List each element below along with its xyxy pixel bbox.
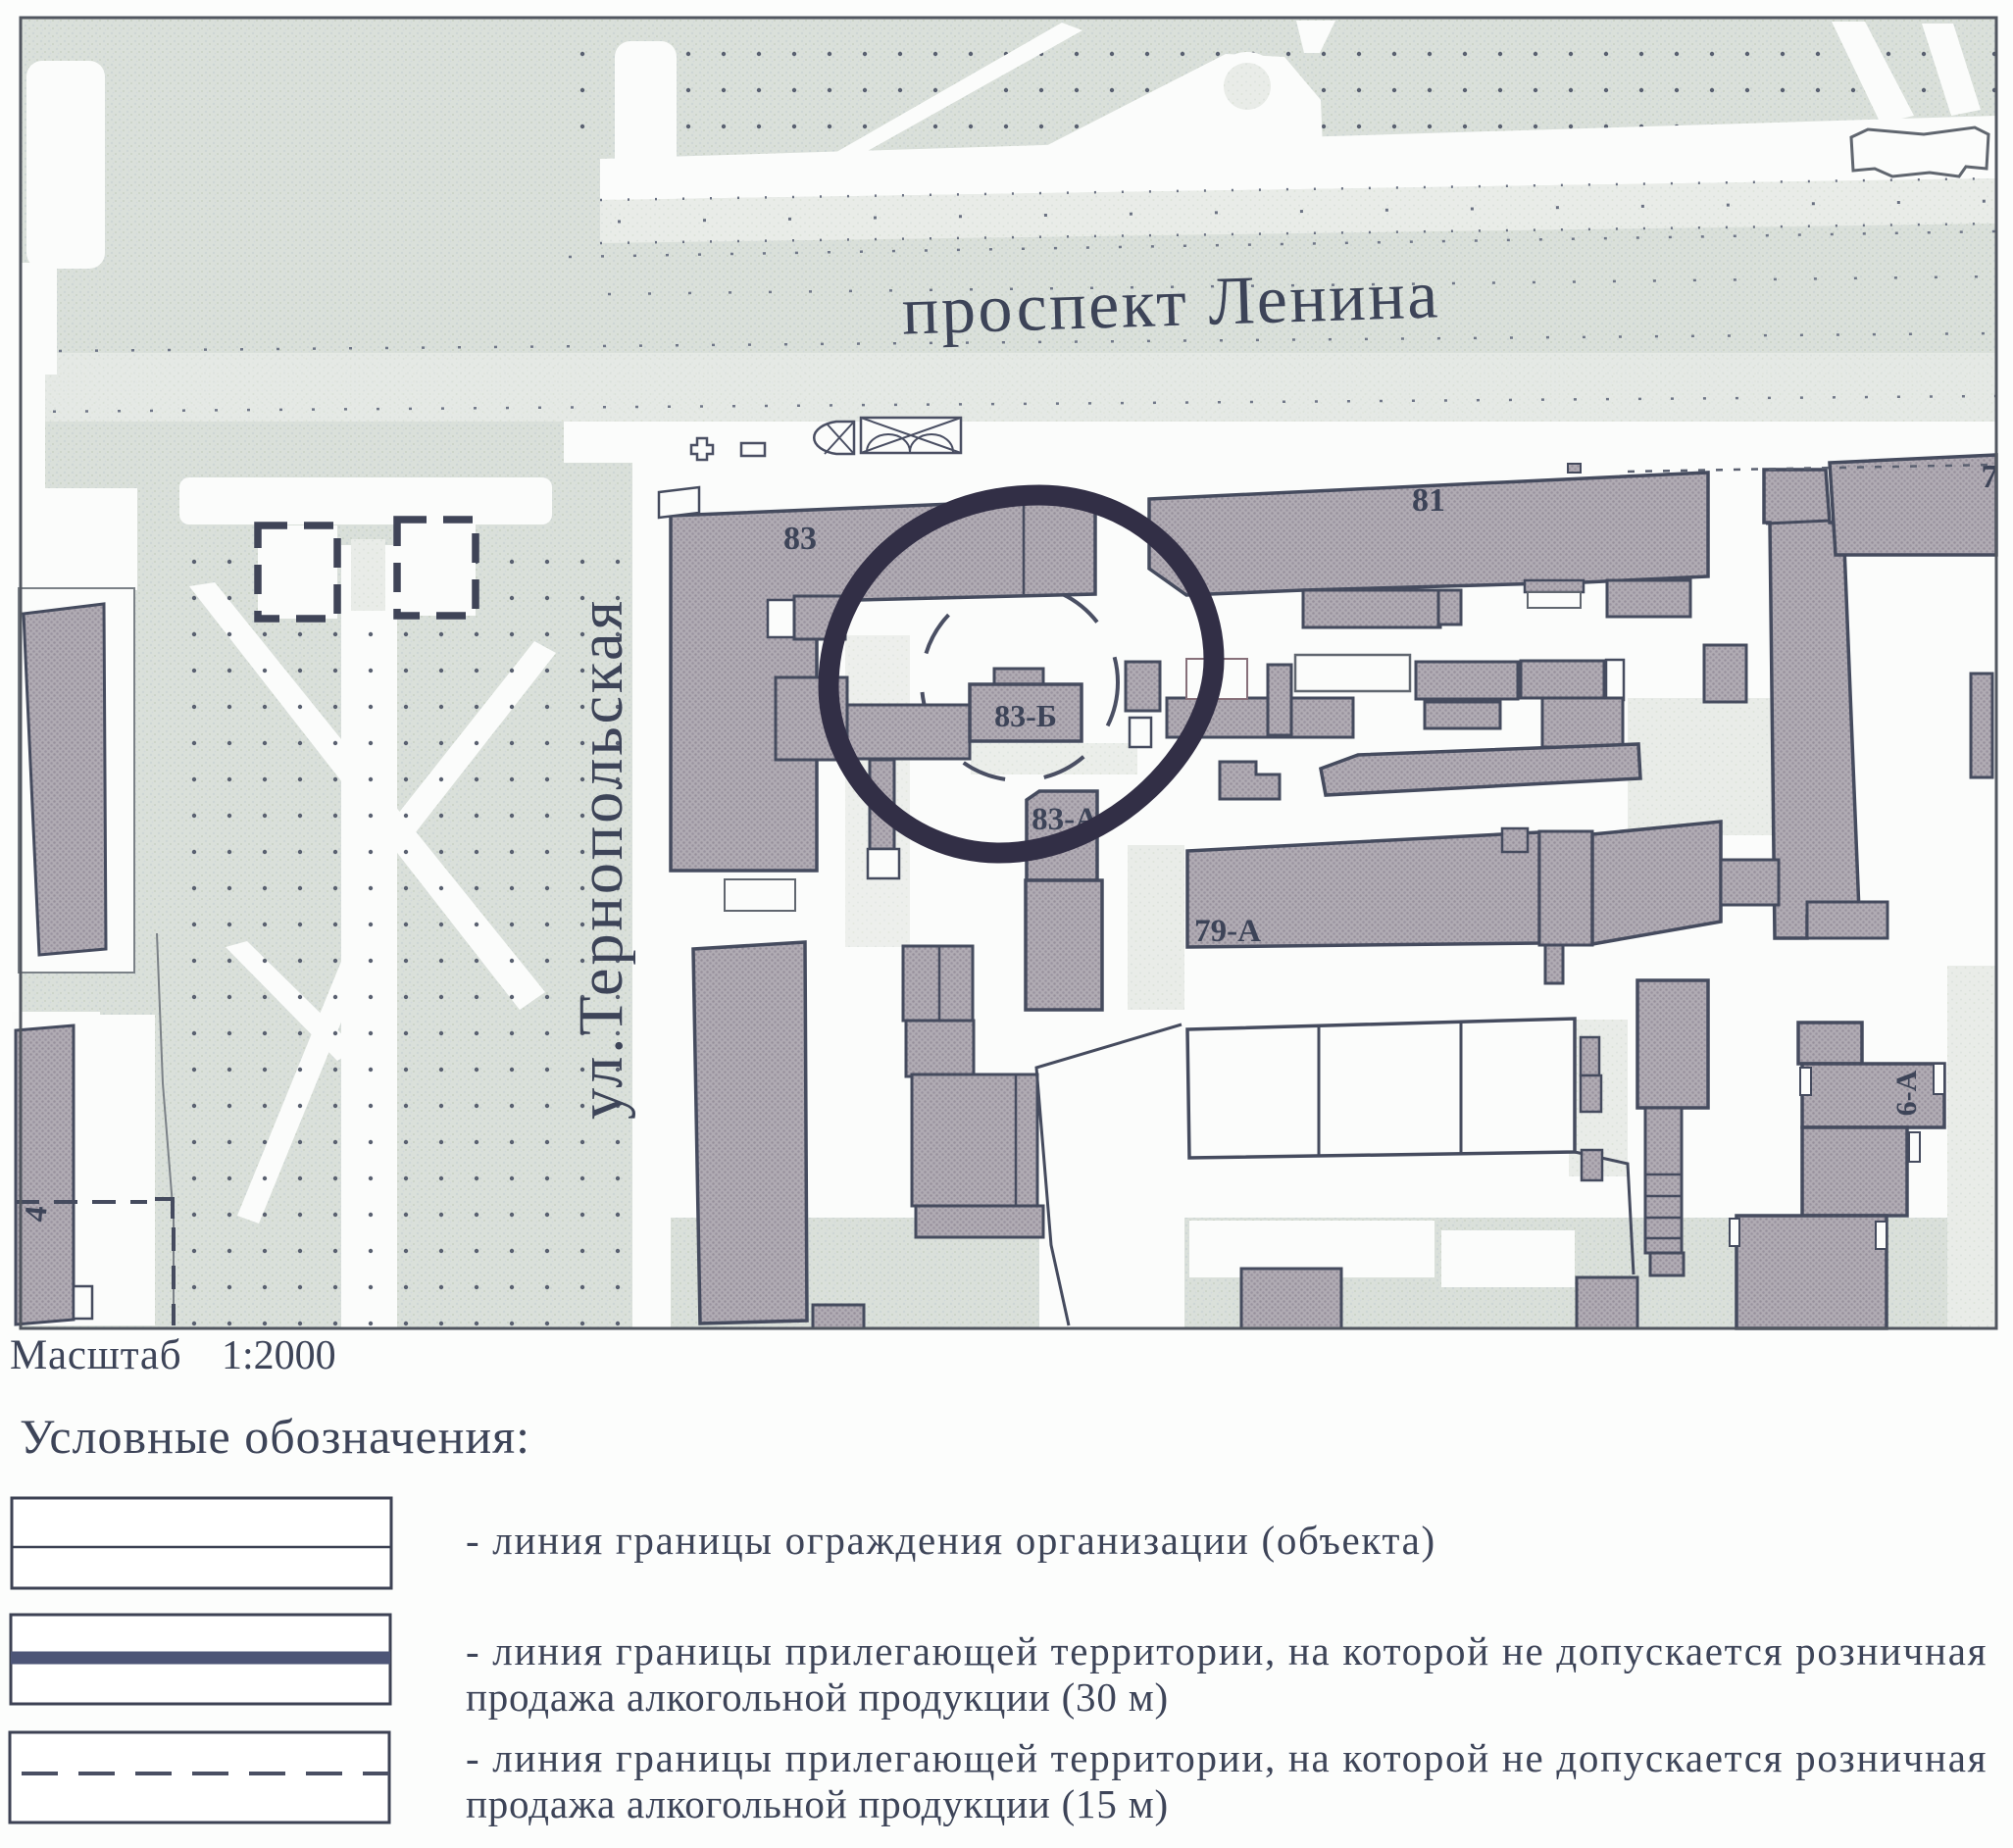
svg-text:ул.Тернопольская: ул.Тернопольская	[566, 598, 635, 1120]
svg-text:6-А: 6-А	[1890, 1070, 1923, 1116]
svg-text:- линия границы ограждения орг: - линия границы ограждения организации (…	[466, 1518, 1436, 1563]
svg-text:83: 83	[783, 521, 817, 557]
svg-text:4: 4	[17, 1205, 53, 1224]
svg-text:83-Б: 83-Б	[994, 698, 1057, 733]
svg-text:79-А: 79-А	[1194, 914, 1261, 949]
svg-text:Условные обозначения:: Условные обозначения:	[20, 1409, 530, 1464]
svg-text:1:2000: 1:2000	[222, 1333, 336, 1378]
svg-text:продажа алкогольной продукции: продажа алкогольной продукции (30 м)	[466, 1674, 1169, 1720]
svg-text:Масштаб: Масштаб	[10, 1332, 181, 1378]
svg-text:продажа алкогольной продукции: продажа алкогольной продукции (15 м)	[466, 1781, 1169, 1826]
svg-text:- линия границы прилегающей те: - линия границы прилегающей территории, …	[466, 1735, 1988, 1780]
svg-text:81: 81	[1412, 482, 1445, 519]
svg-text:- линия границы прилегающей те: - линия границы прилегающей территории, …	[466, 1628, 1988, 1673]
